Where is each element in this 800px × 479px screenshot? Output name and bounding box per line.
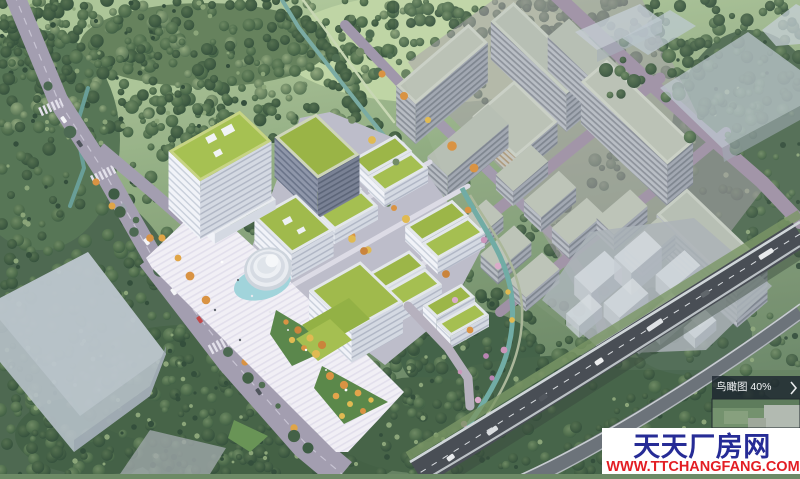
svg-text:天天厂房网: 天天厂房网	[633, 432, 771, 462]
svg-text:WWW.TTCHANGFANG.COM: WWW.TTCHANGFANG.COM	[606, 459, 799, 474]
svg-text:鸟瞰图 40%: 鸟瞰图 40%	[716, 380, 771, 393]
